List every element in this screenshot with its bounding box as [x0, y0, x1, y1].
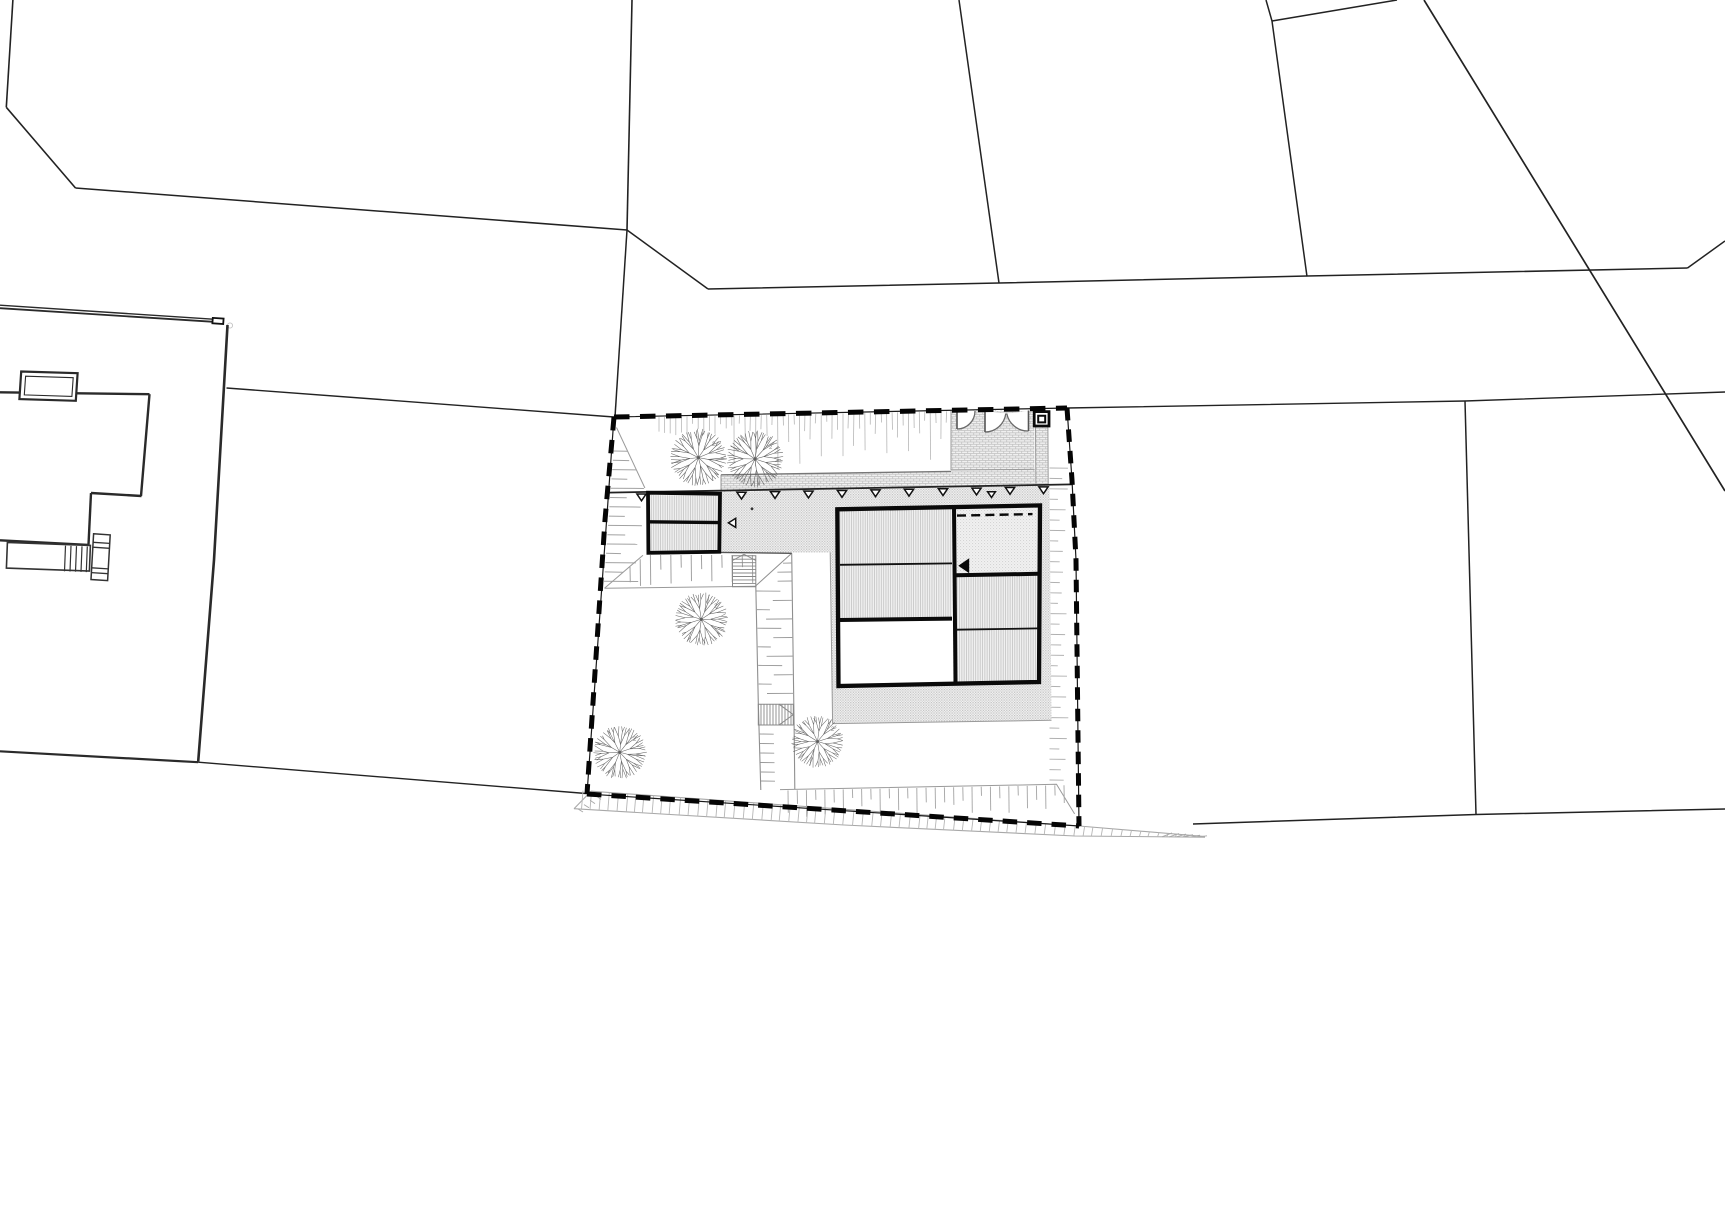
svg-text:2: 2: [769, 445, 773, 451]
svg-text:2: 2: [831, 727, 835, 733]
svg-text:2: 2: [712, 442, 716, 448]
